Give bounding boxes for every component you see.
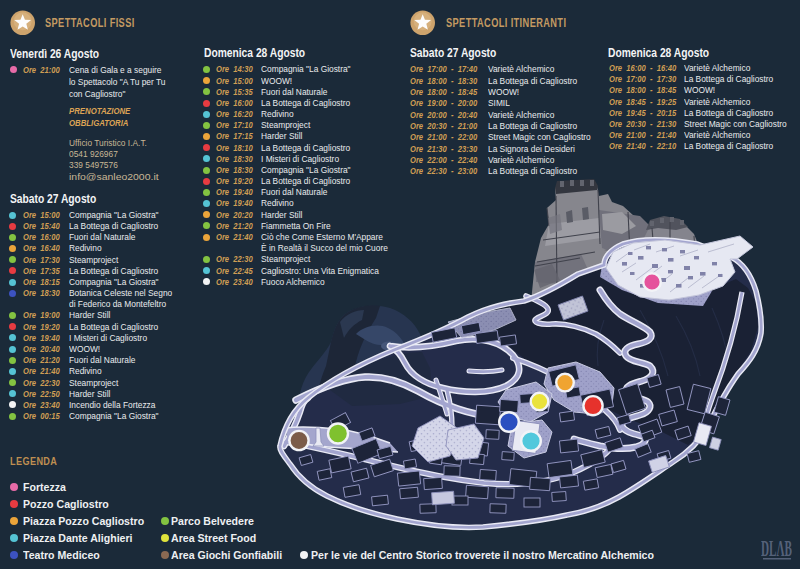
svg-text:DLΛB: DLΛB [761, 535, 792, 561]
